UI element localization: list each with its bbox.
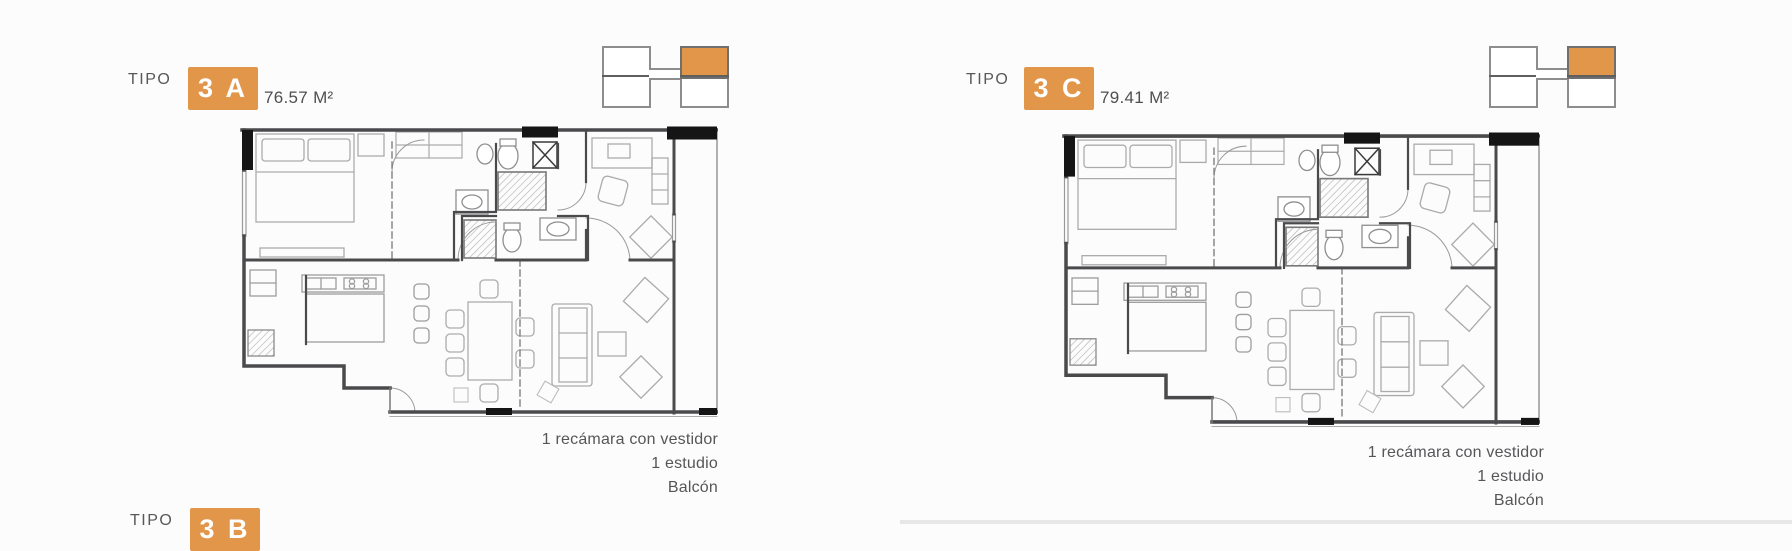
tower-bridge — [1536, 68, 1569, 80]
tower-square — [602, 46, 651, 108]
unit-features: 1 recámara con vestidor 1 estudio Balcón — [238, 428, 718, 500]
unit-area: 76.57 M² — [264, 88, 334, 108]
tipo-label: TIPO — [966, 71, 1009, 89]
unit-code-badge: 3 C — [1024, 67, 1094, 110]
feature-line: 1 estudio — [238, 452, 718, 476]
feature-line: Balcón — [1062, 489, 1544, 513]
tipo-label: TIPO — [130, 512, 173, 530]
unit-area: 79.41 M² — [1100, 88, 1170, 108]
floor-plan-3a — [240, 126, 718, 418]
unit-code-badge: 3 B — [190, 508, 260, 551]
tower-position-key-icon — [602, 44, 732, 110]
floor-plan-3c — [1062, 132, 1540, 428]
unit-code-badge: 3 A — [188, 67, 258, 110]
feature-line: 1 recámara con vestidor — [238, 428, 718, 452]
tower-position-key-icon — [1489, 44, 1619, 110]
feature-line: 1 recámara con vestidor — [1062, 441, 1544, 465]
feature-line: 1 estudio — [1062, 465, 1544, 489]
tower-bridge — [649, 68, 682, 80]
unit-features: 1 recámara con vestidor 1 estudio Balcón — [1062, 441, 1544, 513]
tipo-label: TIPO — [128, 71, 171, 89]
tower-square — [1567, 46, 1616, 108]
tower-square — [1489, 46, 1538, 108]
feature-line: Balcón — [238, 476, 718, 500]
tower-square — [680, 46, 729, 108]
next-row-divider — [900, 520, 1792, 524]
